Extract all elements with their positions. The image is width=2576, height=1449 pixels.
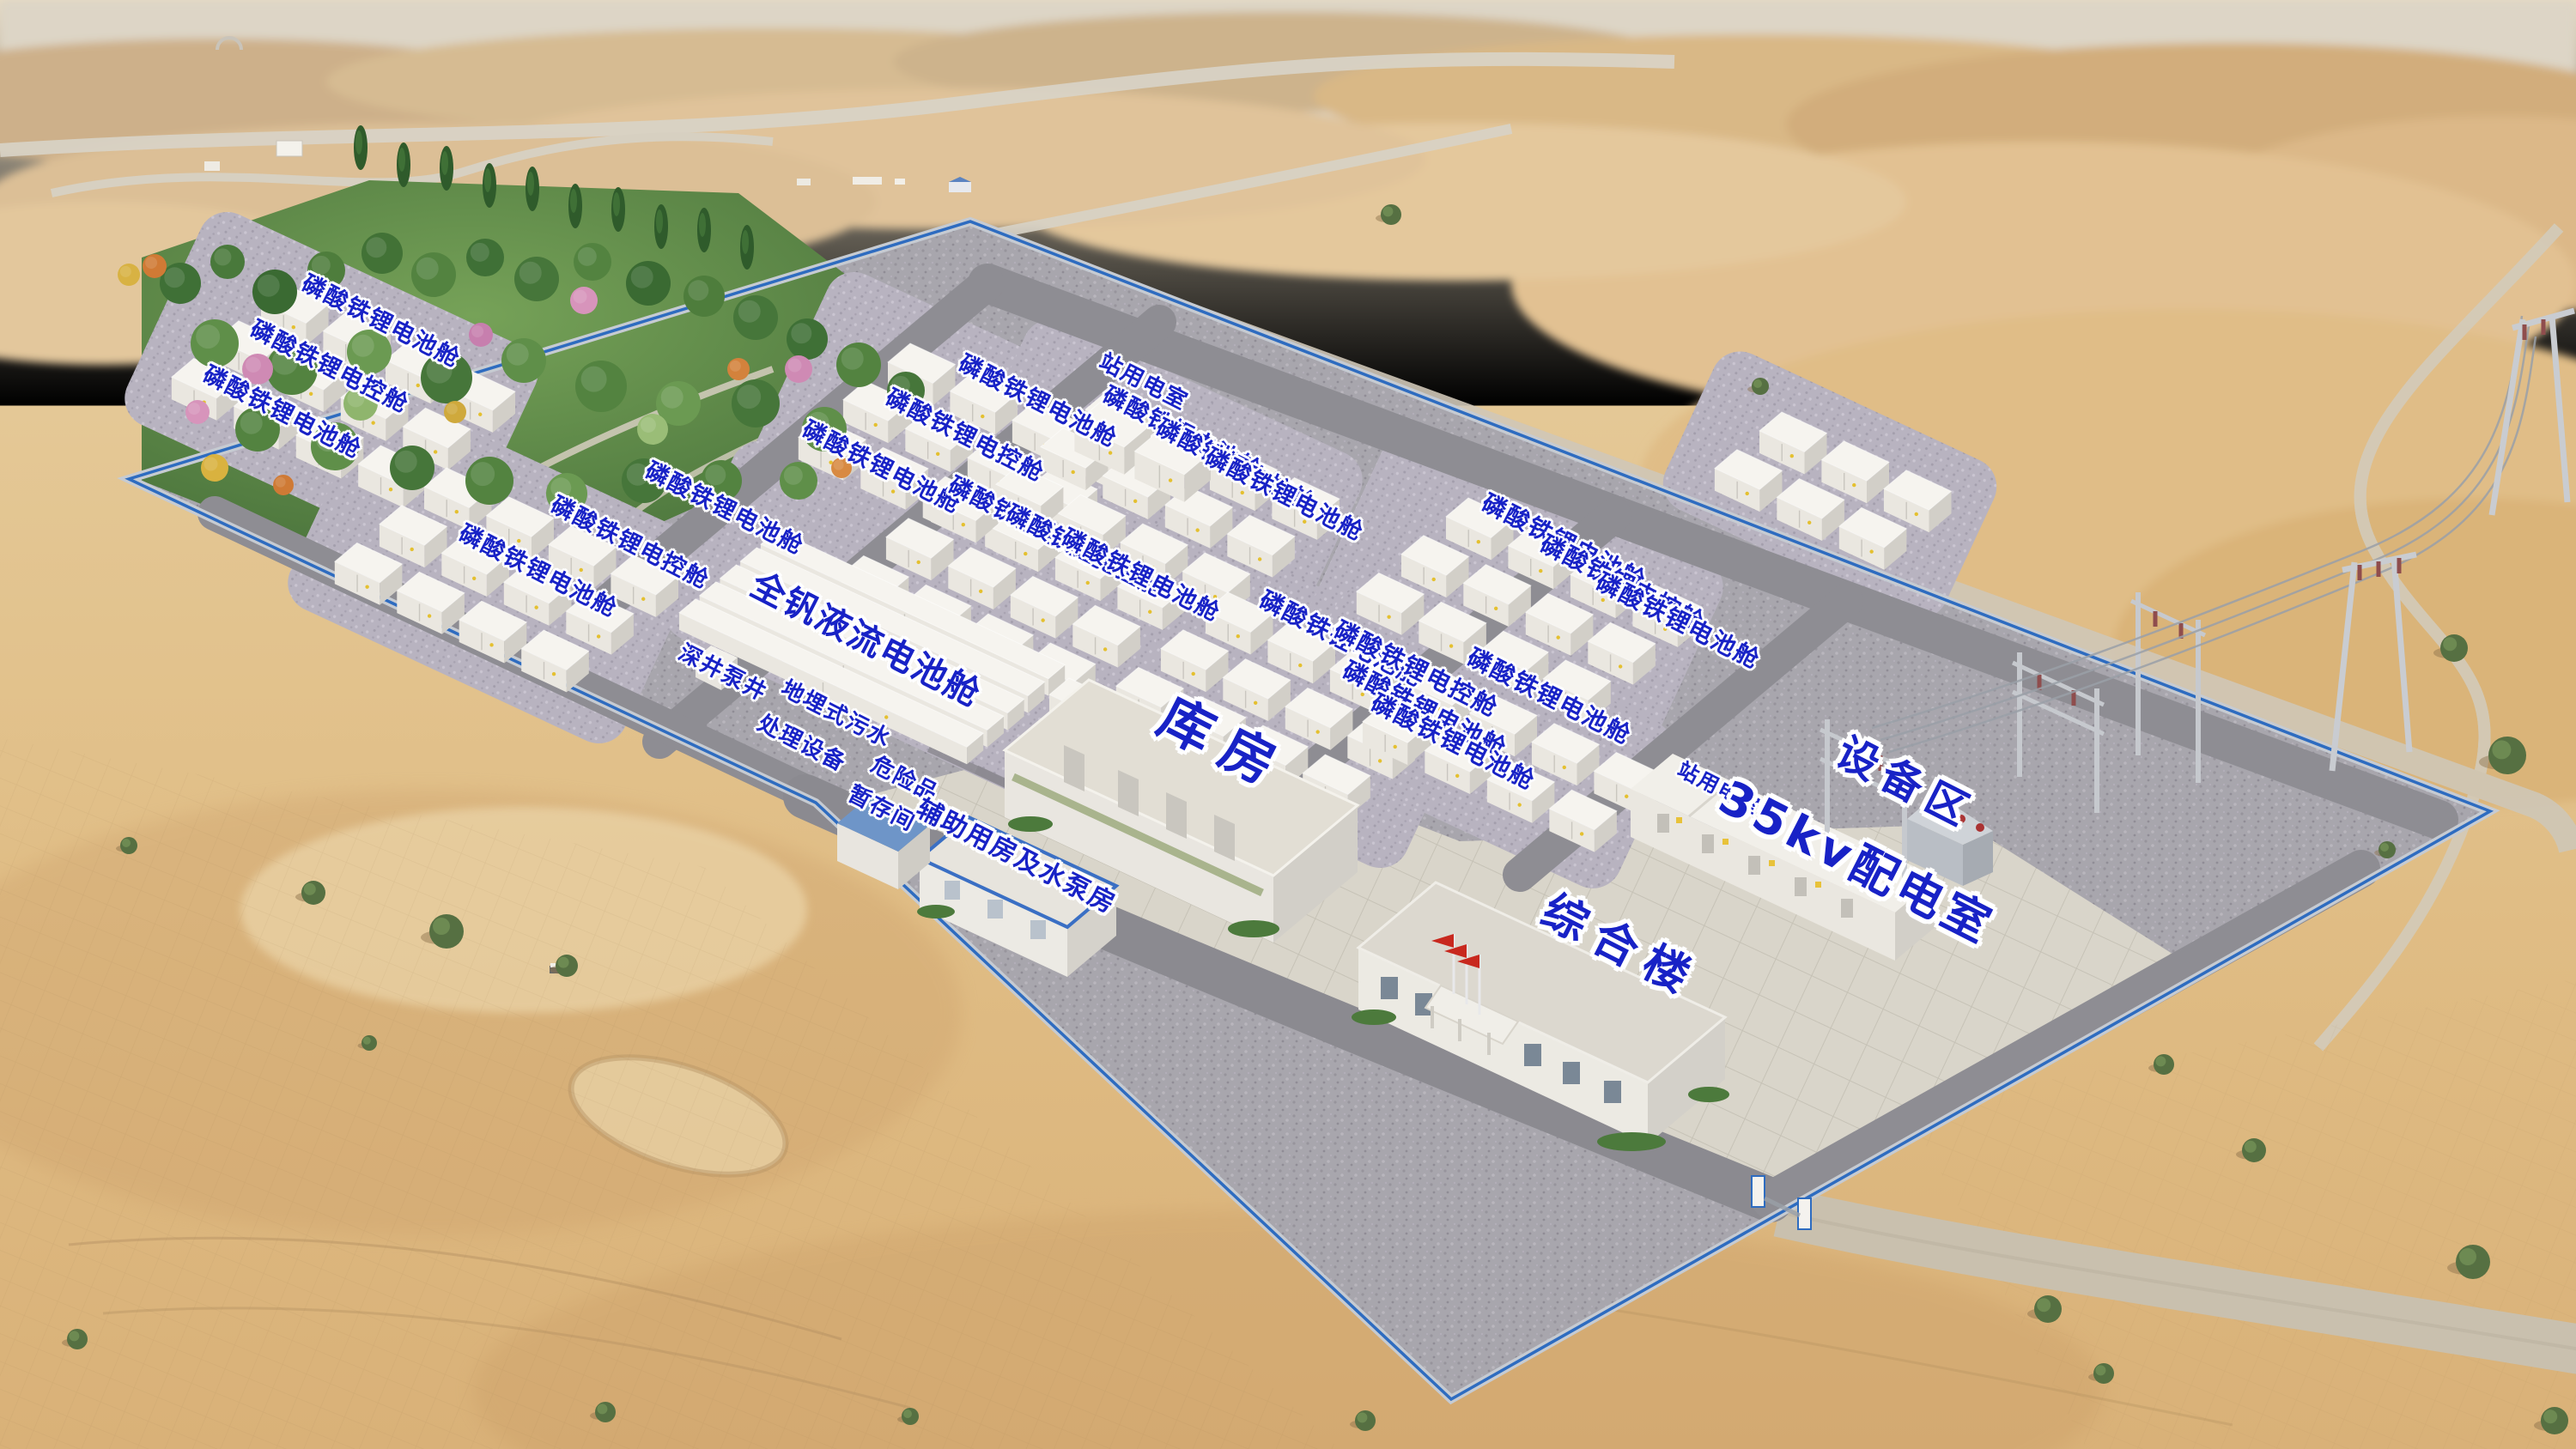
- aerial-site-render: 磷酸铁锂电池舱 磷酸铁锂电控舱 磷酸铁锂电池舱 磷酸铁锂电池舱 磷酸铁锂电控舱 …: [0, 0, 2576, 1449]
- scene-canvas: [0, 0, 2576, 1449]
